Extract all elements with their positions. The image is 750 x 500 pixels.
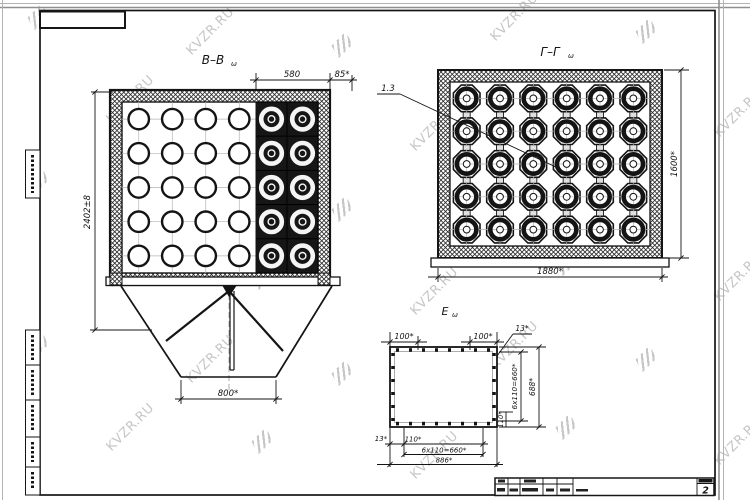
stud-tick [409, 422, 412, 426]
tube-hole [162, 212, 182, 232]
left-stamp-column [26, 150, 41, 495]
tube-center [597, 161, 604, 168]
tube-center [597, 193, 604, 200]
e-dim-100-left: 100* [394, 332, 413, 341]
e-dim-100-right: 100* [473, 332, 492, 341]
tube-center [497, 193, 504, 200]
stud-tick [487, 422, 490, 426]
view-gg: Г–Г ω 1.3 1880* [377, 45, 689, 282]
stud-tick [461, 422, 464, 426]
stud-tick [409, 348, 412, 352]
drawing-sheet: KVZR.RUKVZR.RUKVZR.RUKVZR.RUKVZR.RUKVZR.… [0, 0, 750, 500]
stud-tick [492, 405, 496, 408]
bb-hopper [106, 273, 340, 392]
stud-tick [474, 348, 477, 352]
stud-tick [492, 418, 496, 421]
stud-tick [391, 418, 395, 421]
stud-tick [492, 392, 496, 395]
tube-center [563, 95, 570, 102]
tube-hole [229, 143, 249, 163]
e-dim-886: 886* [436, 457, 453, 465]
stud-tick [396, 422, 399, 426]
tube-center [563, 193, 570, 200]
stud-tick [396, 348, 399, 352]
stud-tick [422, 348, 425, 352]
stud-tick [487, 348, 490, 352]
tube-hole [229, 109, 249, 129]
tube-hole [129, 246, 149, 266]
stud-tick [435, 348, 438, 352]
tube-center [463, 193, 470, 200]
tube-center [597, 128, 604, 135]
e-dim-13-top: 13* [515, 324, 529, 333]
tube-hole [196, 177, 216, 197]
tube-center [597, 95, 604, 102]
view-e-label-sub: ω [452, 311, 458, 319]
tube-center [463, 226, 470, 233]
tube-center [463, 95, 470, 102]
stud-tick [448, 348, 451, 352]
tube-center [530, 193, 537, 200]
tube-center [630, 193, 637, 200]
tube-center [563, 128, 570, 135]
view-bb-label-sub: ω [231, 60, 237, 68]
tube-center [597, 226, 604, 233]
tube-center [530, 161, 537, 168]
bb-brace [229, 291, 283, 351]
gg-leader-text: 1.3 [381, 84, 395, 94]
tube-hole [162, 177, 182, 197]
tube-center [563, 161, 570, 168]
tube-center [497, 226, 504, 233]
tube-hole [196, 143, 216, 163]
tube-center [530, 95, 537, 102]
tube-center [630, 128, 637, 135]
e-dim-13-bottom: 13* [375, 435, 388, 443]
tube-center [497, 161, 504, 168]
e-dim-pitch-bottom: 6х110=660* [422, 447, 467, 455]
stud-tick [461, 348, 464, 352]
view-gg-label-sub: ω [568, 52, 574, 60]
e-dim-pitch-right: 6х110=660* [510, 363, 519, 409]
tube-hole [229, 212, 249, 232]
stud-tick [448, 422, 451, 426]
title-block-header-cell [699, 479, 713, 483]
tube-center [497, 95, 504, 102]
tube-center [530, 128, 537, 135]
tube-hole [129, 143, 149, 163]
tube-center [463, 161, 470, 168]
tube-center [530, 226, 537, 233]
stud-tick [435, 422, 438, 426]
view-e: Е ω 100* 100* 13* [375, 305, 546, 467]
stud-tick [391, 405, 395, 408]
tube-hole [229, 246, 249, 266]
view-bb: В–В ω [83, 53, 357, 404]
stud-tick [391, 353, 395, 356]
bb-dim-height: 2402±8 [83, 194, 93, 229]
tube-hole [129, 177, 149, 197]
gg-dim-1880: 1880* [537, 267, 563, 277]
e-dim-110-bottom: 110* [405, 436, 422, 444]
e-dim-110-right: 110* [497, 411, 505, 428]
e-plate [390, 347, 497, 427]
bb-flange [106, 277, 340, 286]
bb-dim-85: 85* [334, 70, 349, 80]
tube-hole [162, 109, 182, 129]
title-block: 2 [495, 478, 714, 497]
tube-hole [162, 143, 182, 163]
revision-strip [40, 12, 125, 29]
stud-tick [391, 392, 395, 395]
stud-tick [391, 366, 395, 369]
stud-tick [474, 422, 477, 426]
tube-center [497, 128, 504, 135]
bb-brace [166, 291, 229, 341]
e-dim-688: 688* [528, 378, 537, 396]
bb-dim-800: 800* [218, 389, 238, 399]
view-gg-label: Г–Г [540, 45, 561, 59]
view-e-label: Е [442, 305, 449, 318]
tube-center [630, 226, 637, 233]
tube-hole [196, 109, 216, 129]
tube-hole [229, 177, 249, 197]
sheet-number: 2 [702, 486, 709, 497]
stud-tick [492, 353, 496, 356]
gg-flange [431, 258, 669, 267]
tube-hole [129, 212, 149, 232]
stud-tick [391, 379, 395, 382]
tube-hole [196, 212, 216, 232]
tube-center [563, 226, 570, 233]
tube-hole [196, 246, 216, 266]
stud-tick [492, 366, 496, 369]
stud-tick [422, 422, 425, 426]
tube-center [463, 128, 470, 135]
drawing-svg: В–В ω [0, 0, 750, 500]
gg-dim-1600: 1600* [670, 151, 680, 177]
tube-hole [162, 246, 182, 266]
bb-dim-580: 580 [284, 70, 300, 80]
view-bb-label: В–В [202, 53, 224, 67]
tube-center [630, 95, 637, 102]
tube-center [630, 161, 637, 168]
tube-hole [129, 109, 149, 129]
stud-tick [492, 379, 496, 382]
